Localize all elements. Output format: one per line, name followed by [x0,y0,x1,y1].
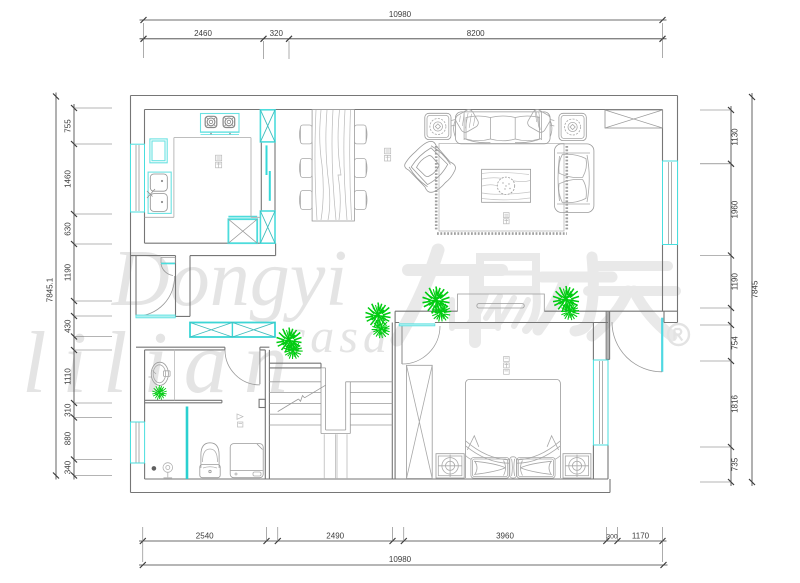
svg-text:1960: 1960 [731,200,740,218]
svg-text:7845.1: 7845.1 [46,277,55,302]
svg-text:10980: 10980 [389,555,412,564]
svg-text:630: 630 [64,222,73,236]
svg-text:2490: 2490 [326,532,344,541]
svg-text:1460: 1460 [64,170,73,188]
svg-text:735: 735 [731,457,740,471]
svg-text:3960: 3960 [496,532,514,541]
svg-text:2460: 2460 [194,29,212,38]
svg-text:1190: 1190 [64,263,73,281]
svg-text:1110: 1110 [64,368,73,385]
svg-text:2540: 2540 [196,532,214,541]
svg-text:1130: 1130 [731,128,740,146]
svg-text:10980: 10980 [389,10,412,19]
svg-text:880: 880 [64,431,73,445]
svg-text:430: 430 [64,319,73,333]
svg-text:8200: 8200 [467,29,485,38]
svg-text:320: 320 [270,29,284,38]
svg-text:300: 300 [606,534,618,541]
svg-text:340: 340 [64,460,73,474]
svg-text:1190: 1190 [731,273,740,291]
svg-text:7845: 7845 [751,280,760,298]
svg-text:754: 754 [731,336,740,350]
svg-text:1170: 1170 [632,532,650,541]
svg-text:755: 755 [64,119,73,133]
svg-text:310: 310 [64,403,73,417]
svg-text:1816: 1816 [731,395,740,413]
